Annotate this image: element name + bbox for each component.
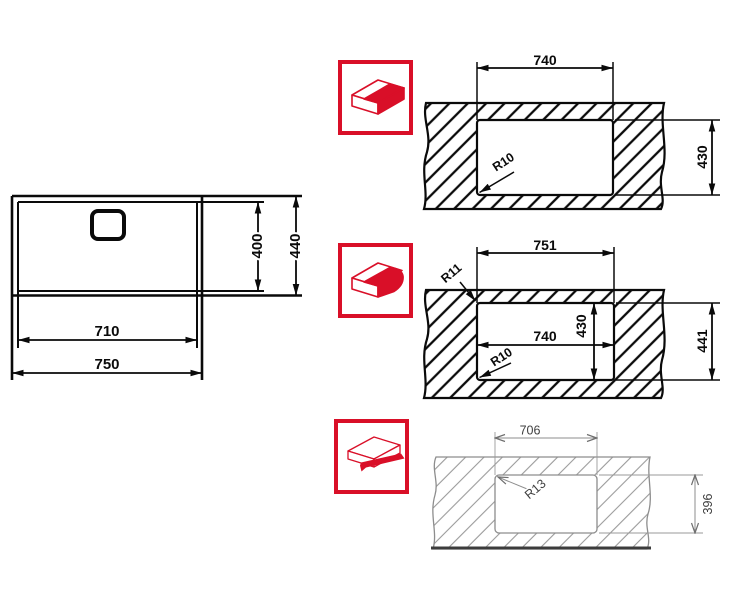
flush-mount-sink-icon-art	[342, 247, 409, 314]
top-mount-sink-icon	[334, 419, 409, 494]
dimension-overall-depth: 440	[287, 196, 304, 296]
top-mount-sink-icon-art	[338, 423, 405, 490]
dim-label-overall-width: 750	[94, 356, 119, 373]
undermount-sink-icon-art	[342, 64, 409, 131]
worktop-slab	[424, 103, 665, 209]
dim-label-cutout-height: 396	[701, 494, 715, 515]
dim-label-cutout-width: 706	[520, 424, 541, 438]
undermount-cutout-drawing: 740 430 R10	[415, 55, 745, 220]
undermount-sink-icon	[338, 60, 413, 135]
technical-drawing-page: 710 750 400 440	[0, 0, 748, 600]
worktop-slab	[424, 290, 665, 398]
dim-label-recess-width: 751	[533, 237, 557, 253]
dim-label-inner-width: 740	[533, 328, 557, 344]
flush-mount-sink-icon	[338, 243, 413, 318]
dimension-bowl-depth: 400	[249, 202, 266, 291]
dim-label-recess-height: 441	[694, 329, 710, 353]
dimension-bowl-width: 710	[18, 323, 197, 340]
dim-label-cutout-height: 430	[694, 145, 710, 169]
cutout-opening	[495, 475, 597, 533]
dimension-overall-width: 750	[12, 356, 202, 373]
dim-label-bowl-depth: 400	[249, 233, 266, 258]
dim-label-bowl-width: 710	[94, 323, 119, 340]
dim-label-overall-depth: 440	[287, 233, 304, 258]
flush-mount-cutout-drawing: 751 740 430 441 R11 R10	[415, 240, 745, 410]
top-mount-cutout-drawing: 706 396 R13	[420, 420, 730, 560]
dim-label-cutout-width: 740	[533, 52, 557, 68]
worktop-slab	[431, 457, 651, 549]
drain-hole	[92, 211, 124, 239]
sink-top-view-drawing: 710 750 400 440	[5, 190, 310, 390]
dim-label-inner-height: 430	[573, 314, 589, 338]
